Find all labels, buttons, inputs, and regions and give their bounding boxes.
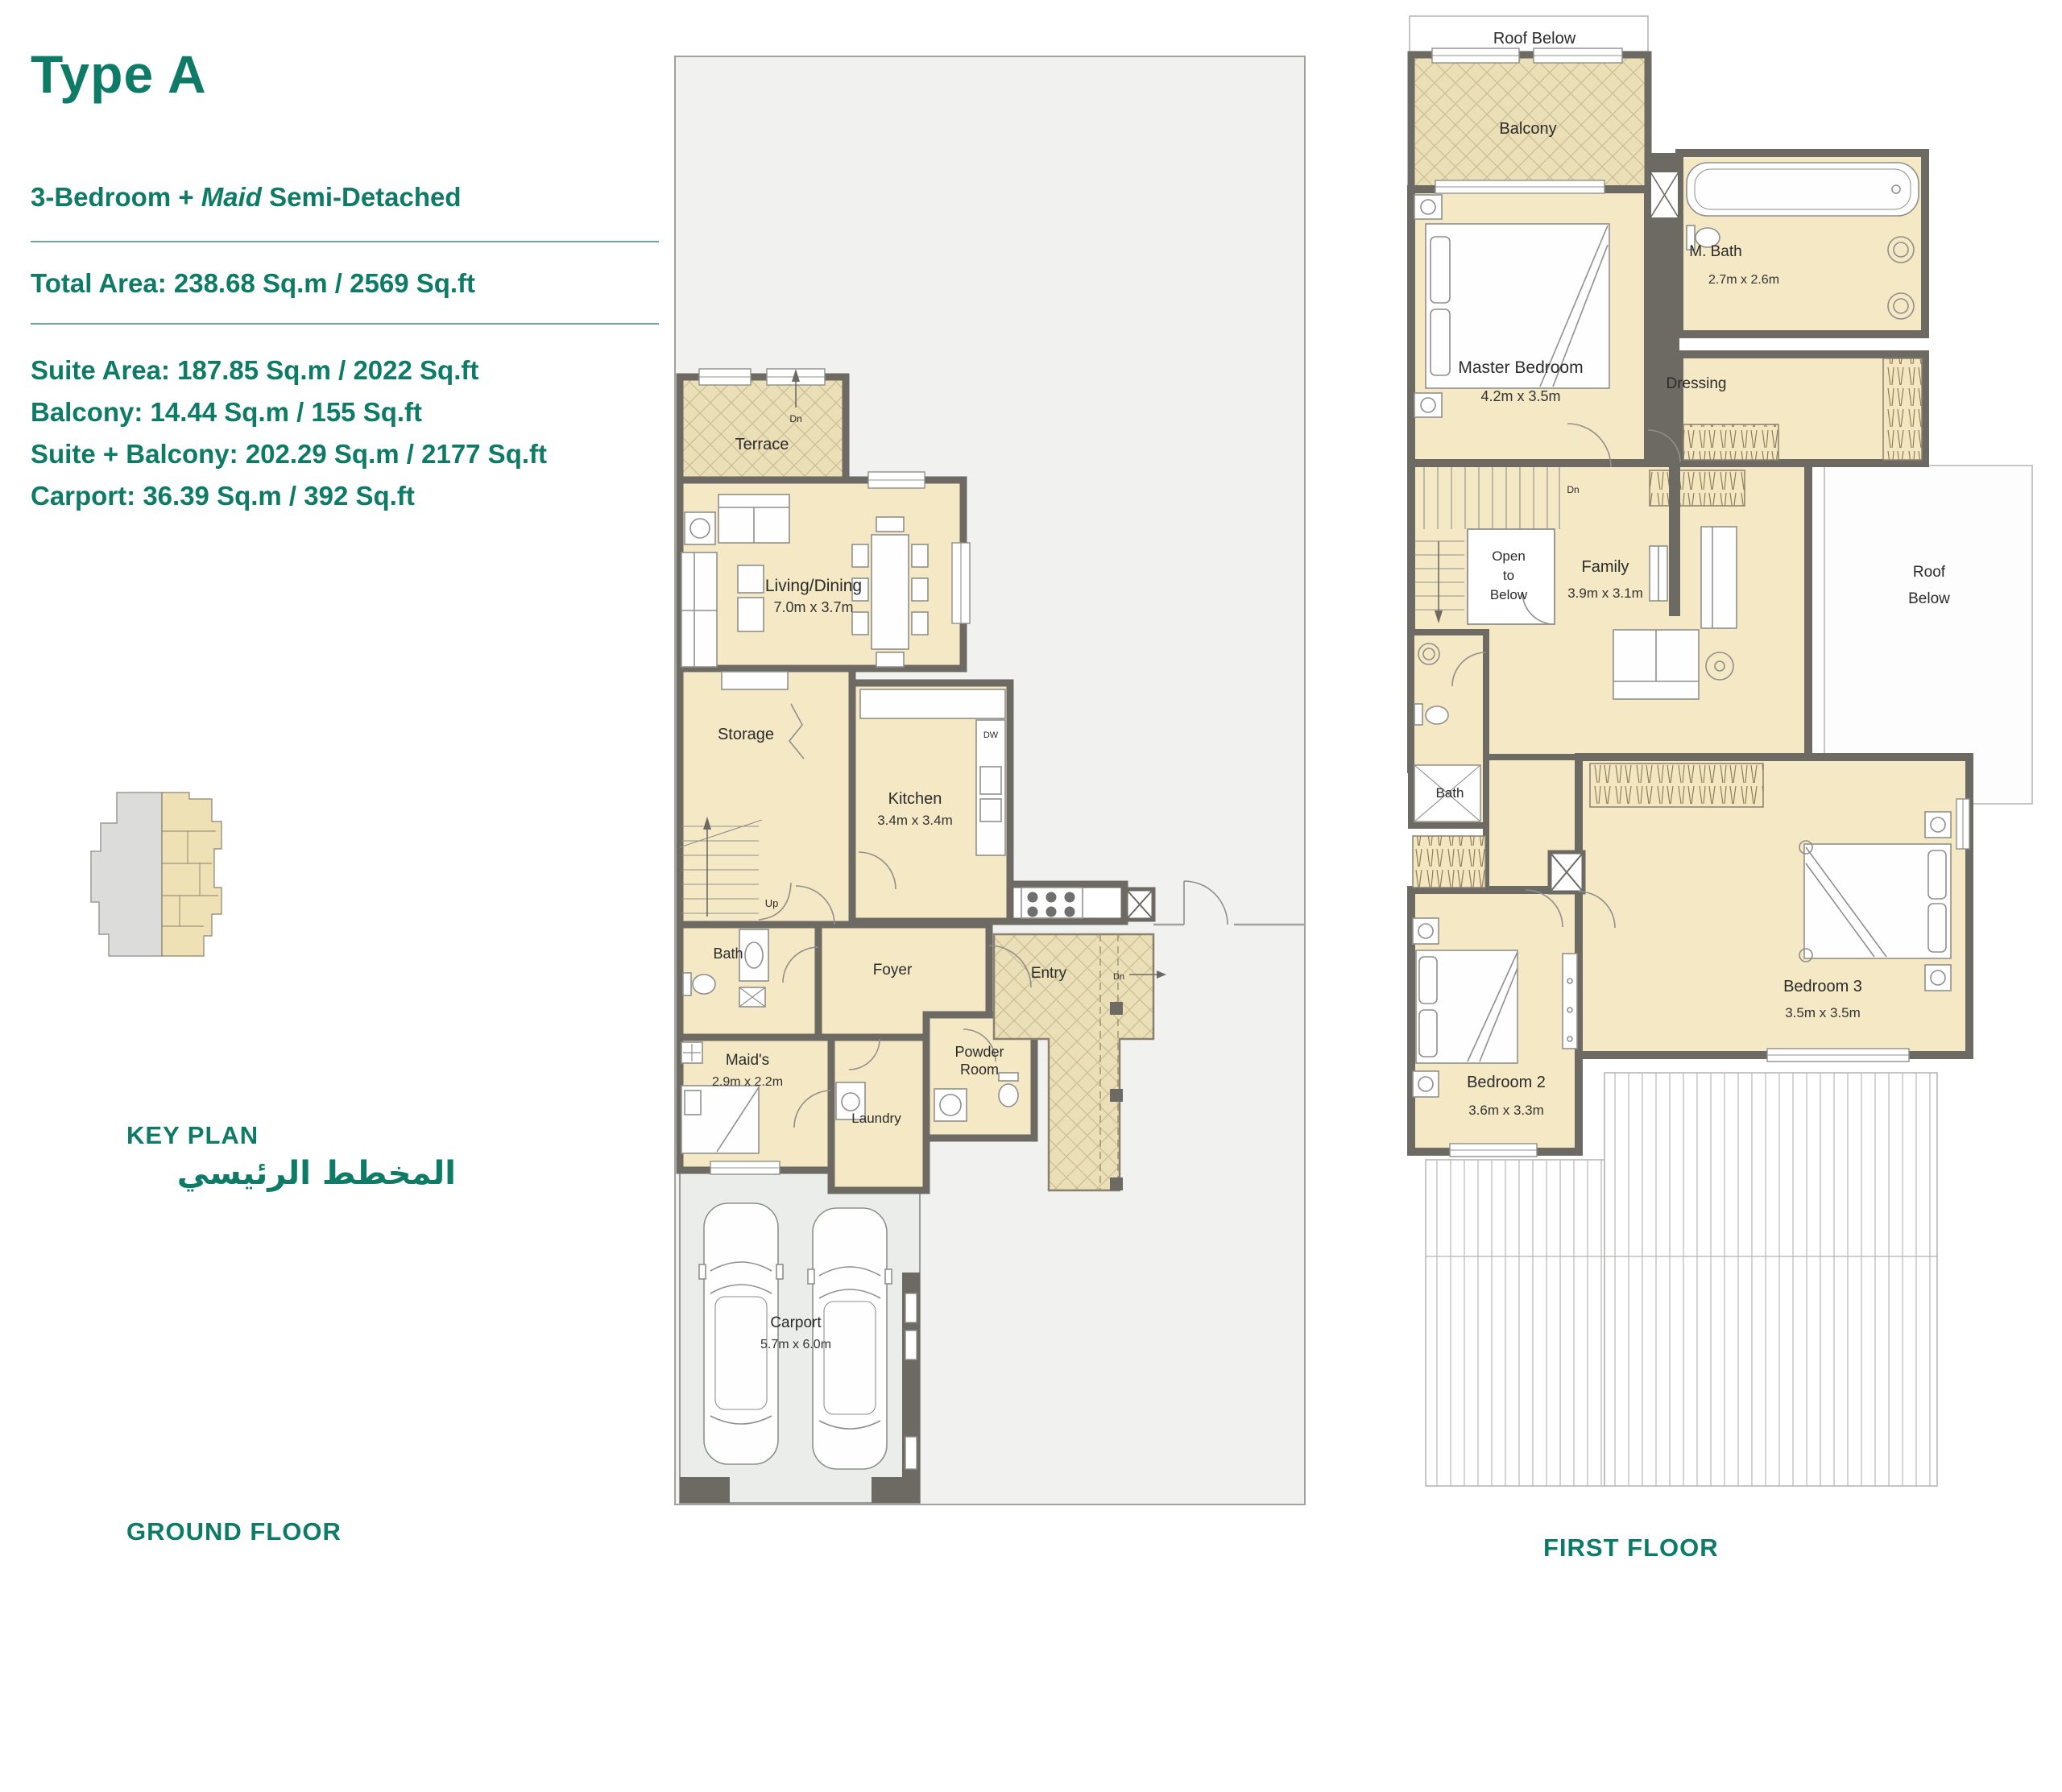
room-label-laundry: Laundry	[851, 1111, 901, 1126]
coffee-table-1	[738, 565, 764, 593]
carport-wall-window-2	[905, 1331, 917, 1360]
room-label-mbath: M. Bath	[1689, 243, 1741, 260]
wardrobe-bed2	[1413, 836, 1485, 888]
bed2-nightstand-1	[1413, 918, 1439, 944]
bath-toilet-bowl	[1426, 706, 1448, 724]
room-label-living: Living/Dining	[765, 577, 862, 595]
label-stairs-dn: Dn	[1567, 484, 1579, 495]
unit-subtitle: 3-Bedroom + Maid Semi-Detached	[31, 182, 462, 213]
shaft-box	[1126, 889, 1153, 920]
family-tv-stub-wall	[1669, 463, 1680, 616]
carport-wall-window-1	[905, 1293, 917, 1322]
divider-bottom	[31, 323, 659, 325]
carport-wall-window-3	[905, 1437, 917, 1469]
balcony-area: Balcony: 14.44 Sq.m / 155 Sq.ft	[31, 391, 547, 433]
sofa-side	[681, 552, 717, 667]
toilet-bowl	[693, 975, 715, 994]
area-details: Suite Area: 187.85 Sq.m / 2022 Sq.ft Bal…	[31, 350, 547, 517]
room-dims-bed2: 3.6m x 3.3m	[1468, 1103, 1544, 1118]
bathtub	[1687, 163, 1919, 216]
room-dims-carport: 5.7m x 6.0m	[760, 1338, 831, 1351]
room-dims-bed3: 3.5m x 3.5m	[1785, 1005, 1861, 1020]
label-up: Up	[765, 897, 779, 909]
room-dims-kitchen: 3.4m x 3.4m	[877, 813, 953, 828]
room-label-terrace: Terrace	[735, 436, 789, 453]
room-label-dressing: Dressing	[1667, 375, 1727, 392]
room-label-entry: Entry	[1031, 965, 1067, 982]
room-label-foyer: Foyer	[873, 962, 913, 979]
powder-sink-counter	[934, 1089, 967, 1121]
entry-post-1	[1110, 1002, 1123, 1015]
suite-area: Suite Area: 187.85 Sq.m / 2022 Sq.ft	[31, 350, 547, 391]
label-open-3: Below	[1490, 587, 1528, 602]
powder-toilet-bowl	[999, 1084, 1018, 1107]
label-roof-right-2: Below	[1908, 590, 1950, 607]
toilet-tank	[683, 973, 691, 995]
room-label-carport: Carport	[770, 1314, 822, 1331]
label-roof-right-1: Roof	[1913, 564, 1946, 581]
label-open-2: to	[1503, 568, 1514, 583]
key-plan-neighbor-unit	[91, 793, 162, 956]
room-dims-living: 7.0m x 3.7m	[773, 599, 853, 615]
nightstand-2	[1414, 393, 1442, 417]
ground-floor-label: GROUND FLOOR	[126, 1517, 342, 1546]
total-area: Total Area: 238.68 Sq.m / 2569 Sq.ft	[31, 268, 475, 299]
floor-plan-page: Type A 3-Bedroom + Maid Semi-Detached To…	[0, 0, 2062, 1792]
console-table	[722, 672, 788, 689]
wardrobe-dressing-right	[1883, 358, 1922, 460]
bed3-nightstand-1	[1925, 812, 1951, 838]
room-dims-family: 3.9m x 3.1m	[1567, 586, 1643, 601]
room-dims-master: 4.2m x 3.5m	[1480, 388, 1560, 404]
page-title: Type A	[31, 43, 207, 105]
nightstand-1	[1414, 195, 1442, 219]
room-label-bath-first: Bath	[1436, 785, 1464, 801]
room-label-master: Master Bedroom	[1458, 358, 1583, 377]
divider-top	[31, 241, 659, 242]
coffee-table-2	[738, 598, 764, 631]
car-1	[699, 1203, 783, 1464]
key-plan-label-arabic: المخطط الرئيسي	[134, 1155, 456, 1192]
subtitle-suffix: Semi-Detached	[262, 182, 462, 212]
pergola-left	[1426, 1160, 1604, 1486]
subtitle-maid: Maid	[201, 182, 262, 212]
shaft-box-first	[1550, 852, 1584, 892]
room-label-powder-1: Powder	[954, 1044, 1004, 1060]
bed2-nightstand-2	[1413, 1071, 1439, 1097]
carport-area: Carport: 36.39 Sq.m / 392 Sq.ft	[31, 475, 547, 517]
room-label-bed2: Bedroom 2	[1467, 1074, 1546, 1091]
first-floor-label: FIRST FLOOR	[1543, 1533, 1719, 1562]
first-floor-plan: Roof Below Balcony Master Bedroom 4.2m x…	[1403, 10, 2035, 1492]
vanity	[739, 929, 768, 981]
room-label-storage: Storage	[718, 726, 774, 743]
master-furniture	[1414, 195, 1609, 417]
key-plan-map	[83, 783, 240, 960]
room-label-kitchen: Kitchen	[888, 790, 942, 808]
key-plan-label: KEY PLAN	[126, 1121, 259, 1150]
room-dims-mbath: 2.7m x 2.6m	[1708, 273, 1779, 287]
pergola-right	[1604, 1073, 1937, 1486]
room-label-balcony: Balcony	[1499, 120, 1556, 138]
label-dw: DW	[983, 730, 999, 740]
bath-toilet-tank	[1414, 704, 1422, 725]
entry-post-2	[1110, 1089, 1123, 1102]
powder-toilet-tank	[999, 1073, 1018, 1081]
subtitle-prefix: 3-Bedroom +	[31, 182, 201, 212]
suite-balcony-area: Suite + Balcony: 202.29 Sq.m / 2177 Sq.f…	[31, 433, 547, 475]
label-roof-below-top: Roof Below	[1493, 30, 1576, 48]
label-terrace-dn: Dn	[789, 413, 801, 424]
room-storage-stairs	[680, 668, 852, 925]
label-entry-dn: Dn	[1113, 972, 1124, 982]
room-terrace	[680, 377, 846, 480]
carport-corner-block-right	[872, 1477, 920, 1503]
room-dims-maids: 2.9m x 2.2m	[712, 1075, 783, 1089]
room-label-family: Family	[1582, 558, 1629, 576]
key-plan-this-unit	[162, 793, 222, 956]
wardrobe-bed3	[1590, 764, 1763, 807]
room-label-bath-ground: Bath	[713, 946, 743, 962]
entry-post-3	[1110, 1177, 1123, 1190]
carport-corner-block-left	[680, 1477, 730, 1503]
room-label-bed3: Bedroom 3	[1783, 978, 1862, 995]
wardrobe-dressing-bottom	[1683, 424, 1778, 460]
ground-floor-plan: Dn Terrace Living/Dining 7.0m x 3.7m Sto…	[669, 47, 1309, 1509]
label-open-1: Open	[1492, 548, 1526, 564]
armchair	[1701, 527, 1737, 628]
room-label-maids: Maid's	[726, 1052, 769, 1069]
tv-cabinet	[685, 512, 715, 544]
room-label-powder-2: Room	[960, 1062, 999, 1078]
wardrobe-family-top	[1650, 470, 1745, 506]
dresser	[1563, 954, 1577, 1049]
bed3-nightstand-2	[1925, 965, 1951, 991]
